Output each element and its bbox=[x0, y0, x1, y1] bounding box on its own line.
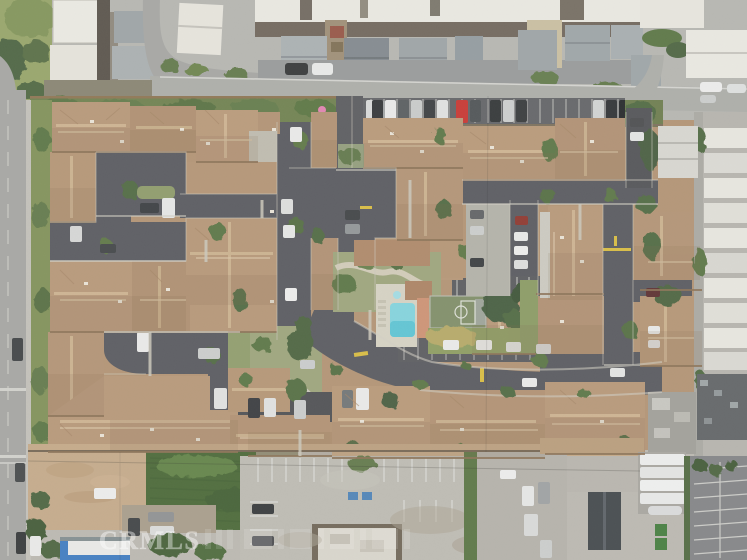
svg-text:CRMLS: CRMLS bbox=[99, 526, 200, 555]
